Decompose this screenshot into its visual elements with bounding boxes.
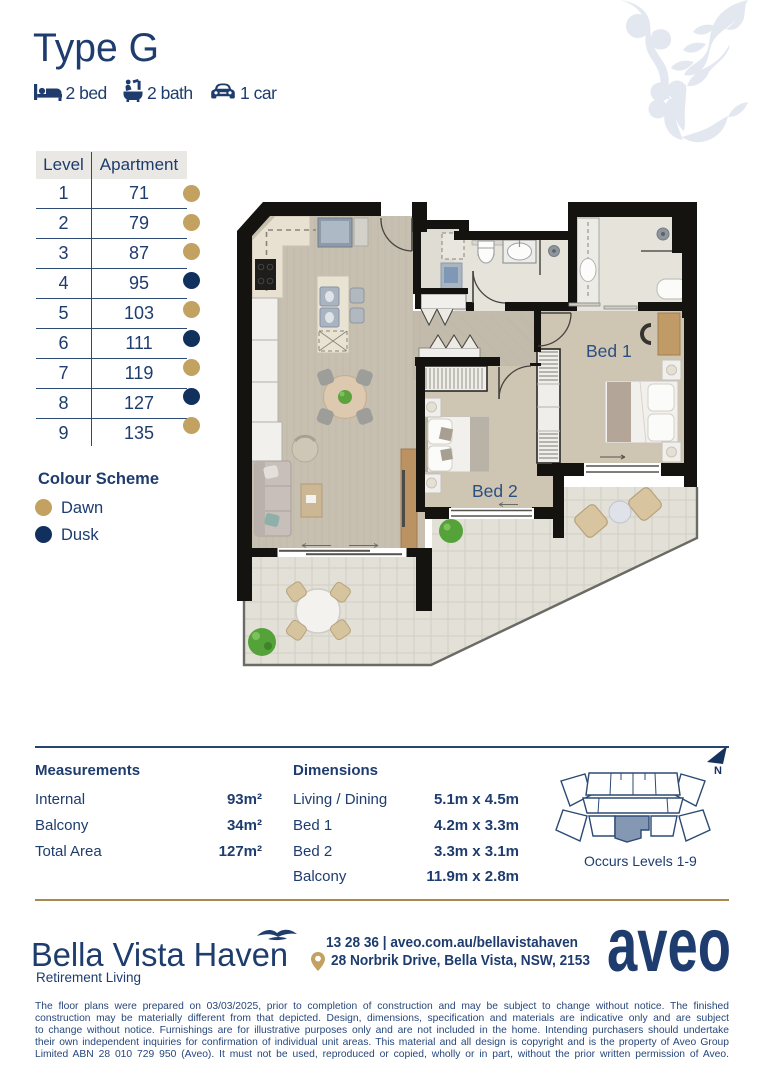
svg-text:N: N [714,765,722,777]
svg-text:aveo: aveo [607,920,731,976]
svg-text:Bella Vista Haven: Bella Vista Haven [31,936,288,972]
svg-text:Type G: Type G [33,26,159,70]
svg-text:Bed 2: Bed 2 [472,481,518,501]
svg-text:13 28 36 | aveo.com.au/bellavi: 13 28 36 | aveo.com.au/bellavistahaven [326,934,578,951]
svg-text:28 Norbrik Drive, Bella Vista,: 28 Norbrik Drive, Bella Vista, NSW, 2153 [331,952,590,969]
svg-text:Bed 1: Bed 1 [586,341,632,361]
